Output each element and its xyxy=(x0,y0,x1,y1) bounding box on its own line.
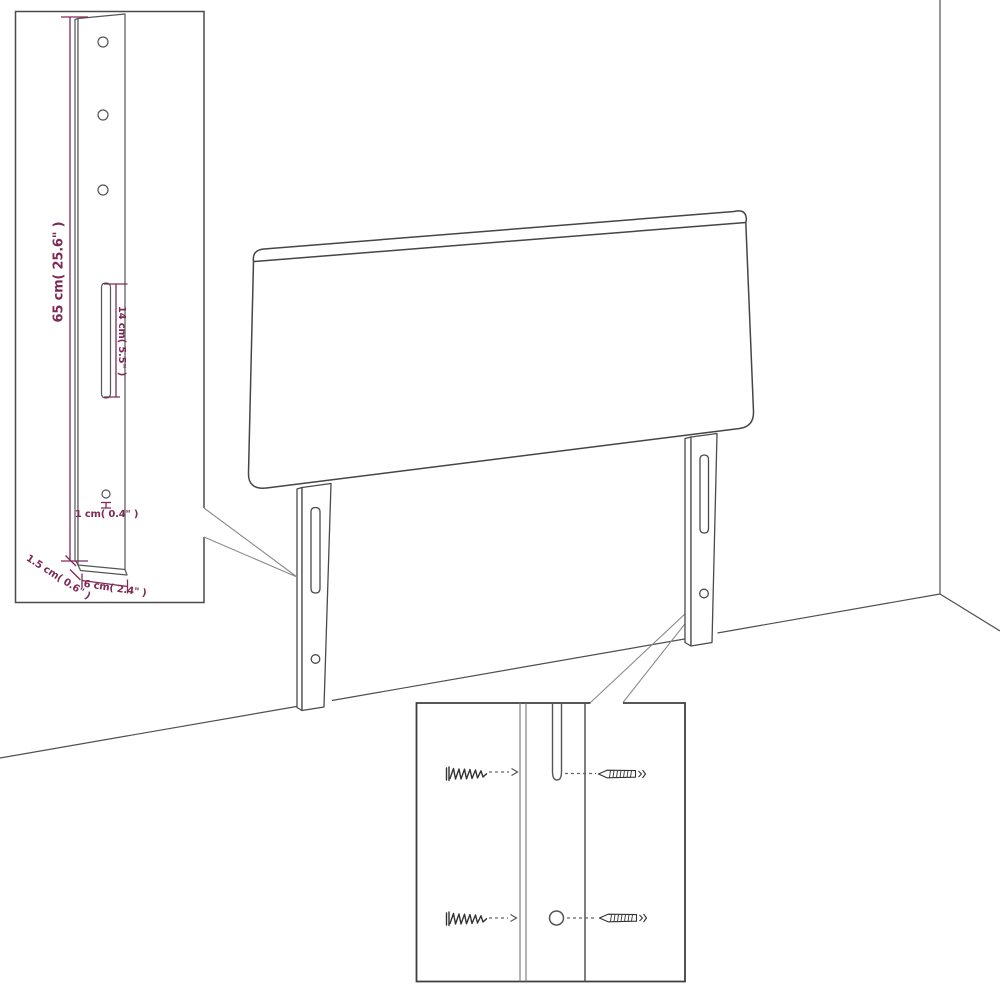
pointed-screw-icon-top xyxy=(599,770,646,778)
right-leg-hole xyxy=(700,589,709,598)
left-leg xyxy=(297,484,331,711)
label-leg-width: 6 cm( 2.4" ) xyxy=(83,579,147,599)
leg-closeup-hole-2 xyxy=(98,110,108,120)
screw-detail-inset xyxy=(417,703,686,982)
floor-line-left xyxy=(0,594,940,758)
label-leg-height: 65 cm( 25.6" ) xyxy=(52,222,67,323)
diagram-canvas: 65 cm( 25.6" ) 14 cm( 5.5" ) 1 cm( 0.4" … xyxy=(0,0,1000,1000)
leg-strip-closeup xyxy=(520,703,585,982)
label-hole-diameter: 1 cm( 0.4" ) xyxy=(75,509,138,520)
leg-strip-left-edges xyxy=(520,703,526,982)
right-leg-side-face xyxy=(685,437,691,646)
headboard xyxy=(248,211,753,488)
leg-closeup-drawing xyxy=(75,14,127,575)
leg-closeup-hole-1 xyxy=(98,37,108,47)
leg-closeup-hole-3 xyxy=(98,185,108,195)
label-slot-length: 14 cm( 5.5" ) xyxy=(116,306,127,376)
left-leg-side-face xyxy=(297,488,302,711)
headboard-panel xyxy=(248,223,753,489)
right-leg-slot xyxy=(700,455,709,533)
left-leg-hole xyxy=(311,655,320,664)
slot-closeup xyxy=(553,703,562,780)
hole-closeup xyxy=(550,911,564,925)
guide-arrow-top xyxy=(512,769,518,776)
screw-guides xyxy=(489,769,596,922)
leg-closeup-slot xyxy=(102,283,111,398)
left-leg-slot xyxy=(311,508,320,594)
leg-closeup-small-hole xyxy=(102,490,110,498)
wood-screw-icon-top xyxy=(447,767,487,781)
pointed-screw-icon-bottom xyxy=(600,914,647,922)
inset-border xyxy=(417,703,686,982)
floor-line-right xyxy=(940,594,1000,631)
inset-callout-wedge xyxy=(204,508,297,577)
right-leg xyxy=(685,434,717,647)
guide-arrow-bottom xyxy=(511,915,517,922)
assembly-diagram: 65 cm( 25.6" ) 14 cm( 5.5" ) 1 cm( 0.4" … xyxy=(0,0,1000,1000)
wood-screw-icon-bottom xyxy=(447,912,487,926)
